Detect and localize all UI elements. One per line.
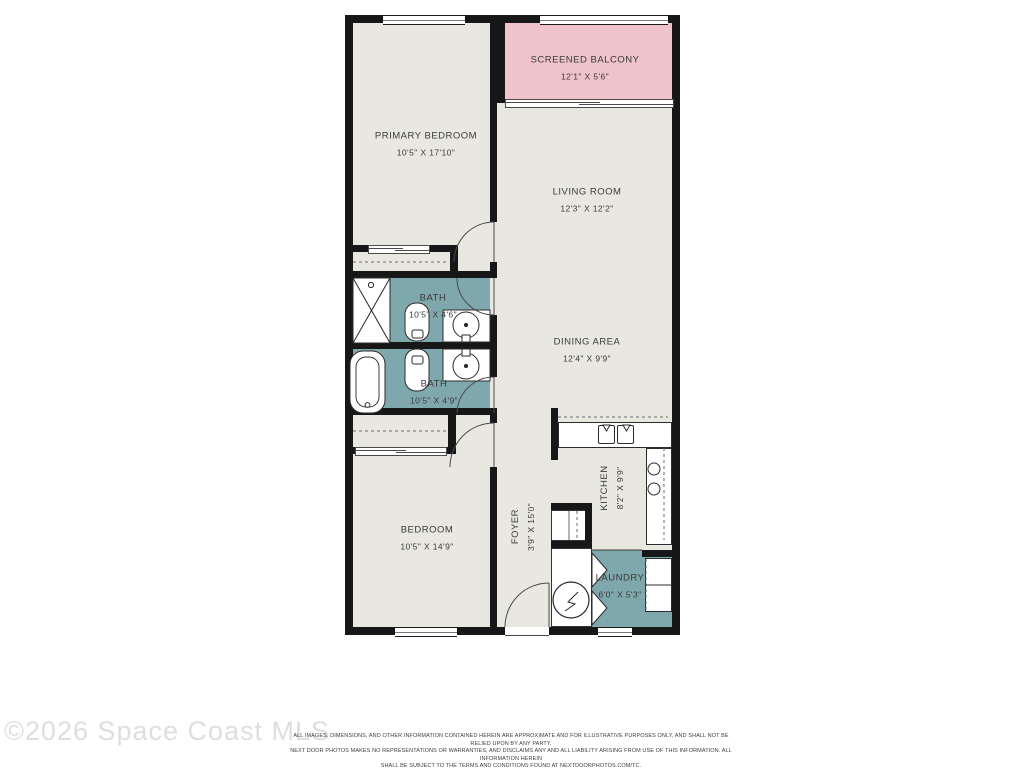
wall-segment xyxy=(428,245,458,252)
disclaimer-line: ALL IMAGES, DIMENSIONS, AND OTHER INFORM… xyxy=(285,733,737,748)
room-name: KITCHEN xyxy=(599,465,610,510)
room-dimensions: 12'3" X 12'2" xyxy=(553,204,622,214)
label-bath-lower: BATH 10'5" X 4'9" xyxy=(410,379,458,406)
closet-sliding-door xyxy=(368,245,430,254)
room-dimensions: 10'5" X 4'6" xyxy=(409,310,457,320)
room-name: PRIMARY BEDROOM xyxy=(375,131,477,142)
label-laundry: LAUNDRY 6'0" X 5'3" xyxy=(596,573,645,600)
floor-plan-page: SCREENED BALCONY 12'1" X 5'6" PRIMARY BE… xyxy=(0,0,1024,768)
kitchen-sink-basin xyxy=(598,425,615,444)
room-name: SCREENED BALCONY xyxy=(531,55,640,66)
kitchen-sink-basin xyxy=(617,425,634,444)
room-name: LAUNDRY xyxy=(596,573,645,584)
kitchen-counter-side xyxy=(646,448,672,545)
room-dimensions: 10'5" X 4'9" xyxy=(410,396,458,406)
room-name: BATH xyxy=(410,379,458,390)
wall-segment xyxy=(490,15,497,222)
window xyxy=(598,627,632,637)
wall-segment xyxy=(345,342,497,349)
entry-door-opening xyxy=(505,627,549,636)
room-name: FOYER xyxy=(510,509,521,544)
label-foyer: FOYER 3'9" X 15'0" xyxy=(510,503,536,551)
room-dimensions: 10'5" X 17'10" xyxy=(375,148,477,158)
room-name: BATH xyxy=(409,293,457,304)
room-dimensions: 12'4" X 9'9" xyxy=(554,354,621,364)
disclaimer-text: ALL IMAGES, DIMENSIONS, AND OTHER INFORM… xyxy=(285,733,737,768)
disclaimer-line: SHALL BE SUBJECT TO THE TERMS AND CONDIT… xyxy=(285,763,737,768)
room-dimensions: 10'5" X 14'9" xyxy=(400,542,453,552)
label-primary-bedroom: PRIMARY BEDROOM 10'5" X 17'10" xyxy=(375,131,477,158)
label-screened-balcony: SCREENED BALCONY 12'1" X 5'6" xyxy=(531,55,640,82)
wall-segment xyxy=(497,15,505,103)
window xyxy=(395,627,457,637)
label-kitchen: KITCHEN 8'2" X 9'9" xyxy=(599,465,625,510)
room-name: BEDROOM xyxy=(400,525,453,536)
label-living-room: LIVING ROOM 12'3" X 12'2" xyxy=(553,187,622,214)
wall-segment xyxy=(345,271,497,278)
room-dimensions: 3'9" X 15'0" xyxy=(526,503,536,551)
room-dimensions: 8'2" X 9'9" xyxy=(615,467,625,510)
balcony-sliding-door xyxy=(505,99,674,108)
wall-segment xyxy=(551,541,592,548)
wall-outer-left xyxy=(345,15,353,635)
kitchen-counter-top xyxy=(558,422,672,448)
window xyxy=(540,15,668,25)
label-bedroom: BEDROOM 10'5" X 14'9" xyxy=(400,525,453,552)
room-name: LIVING ROOM xyxy=(553,187,622,198)
disclaimer-line: NEXT DOOR PHOTOS MAKES NO REPRESENTATION… xyxy=(285,748,737,763)
window xyxy=(383,15,465,25)
closet-sliding-door xyxy=(355,447,447,456)
wall-outer-right xyxy=(672,15,680,635)
wall-segment xyxy=(490,467,497,627)
wall-segment xyxy=(448,415,456,454)
label-bath-upper: BATH 10'5" X 4'6" xyxy=(409,293,457,320)
wall-segment xyxy=(345,245,370,252)
room-dimensions: 6'0" X 5'3" xyxy=(596,590,645,600)
label-dining-area: DINING AREA 12'4" X 9'9" xyxy=(554,337,621,364)
room-dimensions: 12'1" X 5'6" xyxy=(531,72,640,82)
room-name: DINING AREA xyxy=(554,337,621,348)
mls-watermark: ©2026 Space Coast MLS xyxy=(4,716,330,747)
laundry-shelf-unit xyxy=(645,558,672,612)
wall-segment xyxy=(345,408,497,415)
wall-segment xyxy=(642,550,672,557)
water-heater-closet xyxy=(551,548,592,627)
wall-segment xyxy=(551,408,558,460)
